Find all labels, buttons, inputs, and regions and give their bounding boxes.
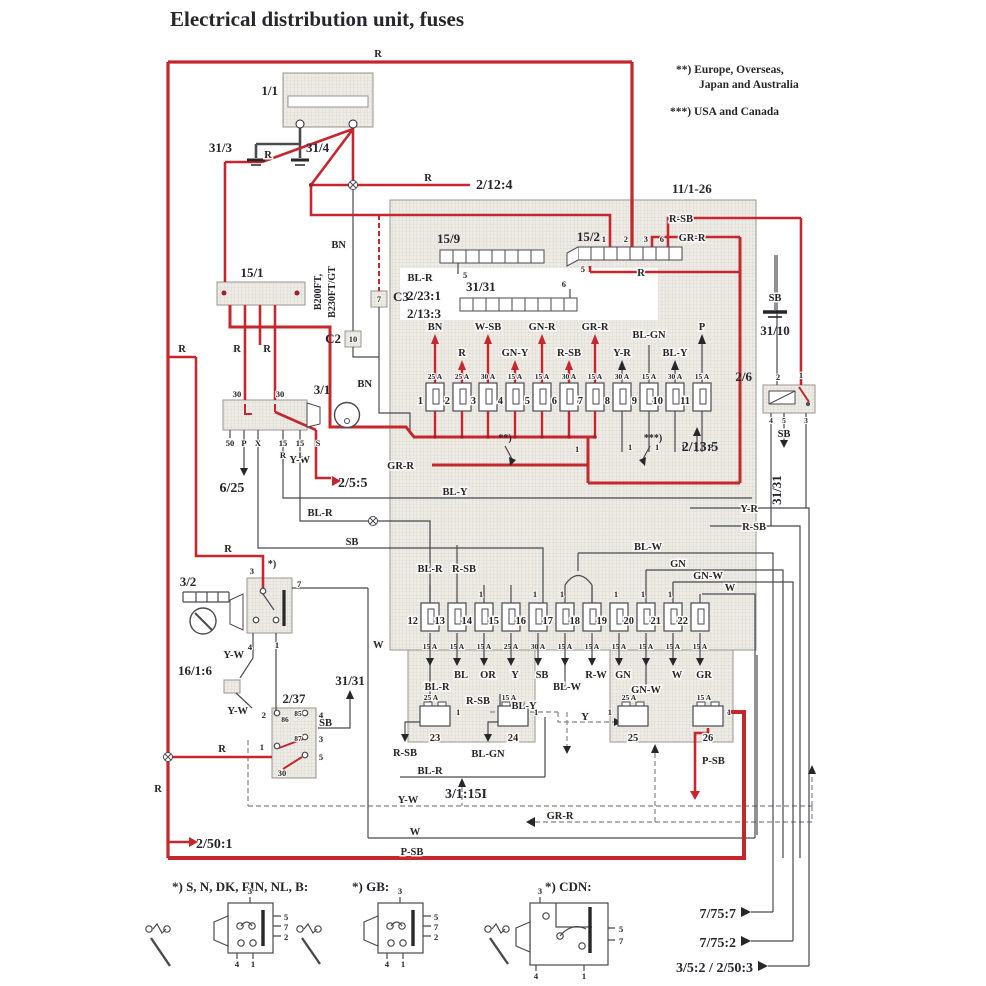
label-wires-r: R: [424, 173, 432, 184]
label-refs-t7752: 7/75:2: [699, 936, 736, 951]
label-wires-yr: Y-R: [740, 504, 758, 515]
label-refs-g3131: 31/31: [769, 475, 784, 505]
label-wires-sb: SB: [778, 429, 791, 440]
label-fuses-row2-0-n: 12: [408, 616, 419, 627]
fuse-element: [455, 609, 461, 624]
fuse-element: [509, 609, 515, 624]
label-fuses-row2-8-n: 20: [624, 616, 635, 627]
label-refs-s32: 3/2: [180, 574, 197, 589]
label-pins-1: 1: [641, 589, 645, 599]
label-fuses-row2-7-w: GN: [615, 670, 631, 681]
label-refs-star3: ***): [644, 433, 662, 444]
strip-15-2-cell: [604, 247, 617, 260]
label-pins-3: 3: [538, 886, 542, 896]
label-pins-87: 87: [294, 734, 302, 743]
label-fuses-row1-4-n: 5: [525, 396, 530, 407]
label-pins-3: 3: [644, 234, 648, 244]
fuse-element: [563, 609, 569, 624]
label-refs-c1616: 16/1:6: [178, 663, 212, 678]
label-fuses-row1-2-w: W-SB: [475, 322, 501, 333]
label-fuses-row2-1-w: BL: [454, 670, 468, 681]
label-pins-P: P: [241, 438, 246, 448]
label-fuses-row1-0-a: 25 A: [428, 372, 443, 381]
label-fuses-row1-1-w: R: [458, 348, 466, 359]
strip-15-2-cell: [617, 247, 630, 260]
strip-31-31-cell: [564, 298, 577, 311]
label-wires-psb: P-SB: [401, 847, 424, 858]
fuse-body: [618, 706, 648, 726]
fuse-element: [620, 389, 626, 404]
label-pins-5: 5: [434, 912, 438, 922]
fuse-element: [644, 609, 650, 624]
label-fuses-row1-8-n: 9: [632, 396, 637, 407]
label-refs-g314: 31/4: [306, 140, 330, 155]
label-fuses-row1-6-a: 15 A: [588, 372, 603, 381]
label-refs-c3: C3: [393, 289, 409, 304]
fuse-element: [590, 609, 596, 624]
label-fuses-row2-2-w: OR: [480, 670, 496, 681]
label-pins-85: 85: [294, 709, 302, 718]
label-refs-eng2: B230FT/GT: [327, 266, 338, 318]
battery-terminal-neg: [296, 120, 304, 128]
label-fuses-row1-10-a: 15 A: [695, 372, 710, 381]
label-refs-t352: 3/5:2 / 2/50:3: [676, 961, 753, 976]
label-pins-1: 1: [602, 234, 606, 244]
label-pins-1: 1: [479, 589, 483, 599]
label-wires-r: R: [263, 344, 271, 355]
label-pins-X: X: [255, 438, 262, 448]
label-pins-1: 1: [533, 589, 537, 599]
label-wires-rsb: R-SB: [742, 522, 766, 533]
label-wires-grr: GR-R: [387, 461, 414, 472]
label-wires-r: R: [224, 544, 232, 555]
label-wires-bn: BN: [357, 379, 372, 390]
label-fuses-row1-6-n: 7: [578, 396, 583, 407]
label-fuses-row1-1-n: 2: [445, 396, 450, 407]
junction-dot: [309, 183, 313, 187]
label-fuses-row1-2-a: 30 A: [481, 372, 496, 381]
label-refs-r26: 2/6: [735, 369, 752, 384]
label-fuses-row2-4-w: SB: [536, 670, 549, 681]
fuse-element: [671, 609, 677, 624]
label-refs-star2: **): [498, 433, 511, 444]
fuse-element: [540, 389, 546, 404]
junction-dot: [433, 435, 437, 439]
label-fuses-row1-5-a: 30 A: [562, 372, 577, 381]
label-fuses-row1-3-a: 15 A: [508, 372, 523, 381]
label-pins-2: 2: [262, 710, 266, 720]
label-pins-3: 3: [250, 566, 254, 576]
label-refs-s151: 15/1: [240, 265, 263, 280]
label-pins-1: 1: [275, 640, 279, 650]
label-wires-blw: BL-W: [634, 542, 663, 553]
label-fuses-row1-8-w: BL-GN: [632, 330, 666, 341]
label-refs-t31151: 3/1:15I: [445, 787, 487, 802]
label-pins-6: 6: [562, 279, 566, 289]
label-wires-w: W: [410, 827, 421, 838]
strip-15-2-cell: [656, 247, 669, 260]
label-wires-gnw: GN-W: [631, 685, 661, 696]
label-fuses-row1-9-n: 10: [653, 396, 664, 407]
fuse-body: [693, 706, 723, 726]
label-wires-yw: Y-W: [227, 706, 248, 717]
label-pins-1: 1: [608, 707, 612, 717]
label-pins-2: 2: [776, 372, 780, 382]
junction-dot: [460, 435, 464, 439]
label-wires-blw: BL-W: [553, 682, 582, 693]
page: BN25 A1R25 A2W-SB30 A3GN-Y15 A4GN-R15 A5…: [0, 0, 986, 986]
label-wires-r: R: [218, 744, 226, 755]
connector-16-1-6: [224, 680, 240, 693]
label-pins-3: 3: [248, 886, 252, 896]
label-pins-30: 30: [278, 768, 287, 778]
label-pins-2: 2: [434, 932, 438, 942]
label-refs-c2231: 2/23:1: [407, 288, 441, 303]
relay-contact-dot: [806, 402, 810, 406]
label-pins-1: 1: [614, 589, 618, 599]
label-fuses-row2-1-n: 13: [435, 616, 446, 627]
label-fuses-row2-2-n: 14: [462, 616, 473, 627]
label-pins-5: 5: [782, 416, 786, 425]
label-wires-psb: P-SB: [702, 756, 725, 767]
label-wires-bly: BL-Y: [442, 487, 468, 498]
label-pins-30: 30: [233, 389, 242, 399]
label-wires-rsb: R-SB: [466, 696, 490, 707]
label-refs-i31: 3/1: [314, 382, 331, 397]
label-wires-w: W: [725, 583, 736, 594]
label-fuses-row3-2-n: 25: [628, 733, 639, 744]
label-fuses-row1-10-n: 11: [680, 396, 690, 407]
strip-15-2-cell: [591, 247, 604, 260]
label-fuses-row1-7-n: 8: [605, 396, 610, 407]
label-pins-30: 30: [276, 389, 285, 399]
label-pins-1: 1: [628, 442, 632, 452]
label-fuses-row2-3-n: 15: [489, 616, 500, 627]
label-wires-blr: BL-R: [424, 682, 450, 693]
fuse-element: [482, 609, 488, 624]
label-fuses-row1-9-a: 30 A: [668, 372, 683, 381]
junction-dot: [567, 435, 571, 439]
label-refs-t2501: 2/50:1: [196, 837, 233, 852]
label-fuses-row1-10-w: P: [699, 322, 706, 333]
strip-15-9-cell: [453, 250, 466, 263]
label-wires-grr: GR-R: [679, 233, 706, 244]
label-pins-2: 2: [624, 234, 628, 244]
label-refs-t2135: 2/13:5: [682, 440, 719, 455]
label-pins-1: 1: [456, 707, 460, 717]
label-wires-gn: GN: [670, 559, 686, 570]
junction-dot: [593, 435, 597, 439]
strip-15-2-cell: [669, 247, 682, 260]
junction-dot: [513, 435, 517, 439]
battery-window: [288, 96, 368, 107]
label-refs-vb: *) GB:: [352, 879, 389, 894]
strip-15-2-cell: [643, 247, 656, 260]
label-fuses-row1-5-w: R-SB: [557, 348, 581, 359]
label-wires-blr: BL-R: [307, 508, 333, 519]
label-pins-1: 1: [727, 707, 731, 717]
label-wires-rsb: R-SB: [393, 748, 417, 759]
switch-connector: [230, 594, 243, 630]
label-refs-unit: 11/1-26: [672, 181, 712, 196]
strip-15-9-cell: [531, 250, 544, 263]
label-pins-86: 86: [281, 715, 289, 724]
label-pins-5: 5: [619, 924, 623, 934]
label-fuses-row1-6-w: GR-R: [582, 322, 609, 333]
fuse-element: [486, 389, 492, 404]
fuse-body: [420, 706, 450, 726]
strip-15-2-cell: [578, 247, 591, 260]
fuse-element: [567, 389, 573, 404]
label-legend-l3: ***) USA and Canada: [670, 106, 779, 118]
label-fuses-row2-3-w: Y: [511, 670, 519, 681]
label-pins-1: 1: [401, 959, 405, 969]
junction-dot: [486, 435, 490, 439]
label-pins-1: 1: [668, 589, 672, 599]
strip-15-2-cell: [630, 247, 643, 260]
label-wires-blr: BL-R: [417, 564, 443, 575]
label-fuses-row1-8-a: 15 A: [642, 372, 657, 381]
label-fuses-row1-0-n: 1: [418, 396, 423, 407]
label-fuses-row1-3-w: GN-Y: [502, 348, 529, 359]
wiring-diagram: BN25 A1R25 A2W-SB30 A3GN-Y15 A4GN-R15 A5…: [0, 0, 986, 986]
label-legend-l1: **) Europe, Overseas,: [676, 64, 784, 76]
label-pins-5: 5: [319, 752, 323, 762]
label-refs-g3131: 31/31: [335, 673, 365, 688]
label-pins-1: 1: [582, 971, 586, 981]
label-legend-l2: Japan and Australia: [699, 79, 799, 91]
label-fuses-row1-4-w: GN-R: [529, 322, 556, 333]
label-refs-eng1: B200FT,: [313, 273, 324, 310]
label-wires-sb: SB: [769, 293, 782, 304]
label-pins-1: 1: [251, 959, 255, 969]
label-wires-r: R: [374, 49, 382, 60]
label-refs-c2133: 2/13:3: [407, 306, 441, 321]
bus-15-1: [217, 282, 305, 305]
variant-c-box: [530, 903, 608, 965]
strip-31-31-cell: [512, 298, 525, 311]
label-pins-5: 5: [581, 264, 585, 274]
label-pins-6: 6: [660, 234, 664, 244]
label-wires-blr: BL-R: [407, 273, 433, 284]
label-wires-y: Y: [581, 712, 589, 723]
label-refs-vc: *) CDN:: [545, 879, 592, 894]
fuse-element: [698, 609, 704, 624]
label-refs-c2: C2: [325, 331, 341, 346]
fuse-element: [513, 389, 519, 404]
label-refs-g3110: 31/10: [760, 323, 790, 338]
fuse-element: [536, 609, 542, 624]
label-fuses-row1-4-a: 15 A: [535, 372, 550, 381]
label-fuses-row2-9-w: W: [672, 670, 683, 681]
label-title: Electrical distribution unit, fuses: [170, 7, 464, 31]
label-fuses-row1-7-w: Y-R: [613, 348, 631, 359]
strip-31-31-cell: [525, 298, 538, 311]
label-wires-yw: Y-W: [398, 795, 419, 806]
label-wires-gnw: GN-W: [693, 571, 723, 582]
label-pins-R: R: [280, 450, 287, 460]
label-fuses-row2-7-n: 19: [597, 616, 608, 627]
label-wires-blgn: BL-GN: [471, 749, 505, 760]
label-fuses-row2-6-n: 18: [570, 616, 581, 627]
junction-dot: [540, 435, 544, 439]
strip-31-31-cell: [473, 298, 486, 311]
label-wires-r: R: [637, 268, 645, 279]
label-fuses-row2-6-w: R-W: [585, 670, 607, 681]
strip-31-31-cell: [551, 298, 564, 311]
label-wires-blr: BL-R: [417, 766, 443, 777]
label-refs-s3131: 31/31: [466, 279, 496, 294]
fuse-element: [428, 609, 434, 624]
fuse-element: [700, 389, 706, 404]
label-wires-r: R: [233, 344, 241, 355]
strip-31-31-cell: [460, 298, 473, 311]
label-wires-w: W: [373, 640, 384, 651]
label-wires-sb: SB: [346, 537, 359, 548]
strip-15-9-cell: [479, 250, 492, 263]
label-pins-2: 2: [284, 932, 288, 942]
label-fuses-row3-0-n: 23: [430, 733, 441, 744]
label-fuses-row1-1-a: 25 A: [455, 372, 470, 381]
label-fuses-row1-7-a: 30 A: [615, 372, 630, 381]
label-fuses-row2-9-n: 21: [651, 616, 662, 627]
label-pins-1: 1: [560, 589, 564, 599]
label-fuses-row2-5-n: 17: [543, 616, 554, 627]
fuse-element: [673, 389, 679, 404]
fuse-element: [460, 389, 466, 404]
label-refs-t255: 2/5:5: [338, 476, 368, 491]
label-pins-15: 15: [279, 438, 288, 448]
label-pins-1: 1: [260, 742, 264, 752]
fuse-element: [433, 389, 439, 404]
label-wires-yw: Y-W: [223, 650, 244, 661]
strip-15-9-cell: [505, 250, 518, 263]
label-fuses-row1-5-n: 6: [552, 396, 557, 407]
label-refs-battery: 1/1: [261, 83, 278, 98]
label-refs-t7757: 7/75:7: [699, 907, 736, 922]
label-pins-3: 3: [319, 734, 323, 744]
label-refs-va: *) S, N, DK, FIN, NL, B:: [172, 879, 308, 894]
fuse-element: [617, 609, 623, 624]
label-pins-3: 3: [398, 886, 402, 896]
strip-31-31-cell: [486, 298, 499, 311]
label-wires-rsb: R-SB: [452, 564, 476, 575]
strip-31-31-cell: [538, 298, 551, 311]
label-fuses-row3-1-n: 24: [508, 733, 519, 744]
label-pins-1: 1: [575, 444, 579, 454]
label-pins-S: S: [316, 438, 321, 448]
fuse-element: [593, 389, 599, 404]
ignition-switch-body: [223, 400, 307, 430]
strip-15-9-cell: [440, 250, 453, 263]
label-pins-10: 10: [349, 334, 358, 344]
bus-terminal: [295, 291, 300, 296]
label-wires-grr: GR-R: [547, 811, 574, 822]
strip-15-9-cell: [466, 250, 479, 263]
label-pins-5: 5: [284, 912, 288, 922]
label-fuses-row3-3-a: 15 A: [697, 693, 712, 702]
label-pins-50: 50: [226, 438, 235, 448]
battery-terminal-pos: [349, 120, 357, 128]
label-refs-r237: 2/37: [282, 691, 306, 706]
label-pins-15: 15: [296, 438, 305, 448]
strip-15-9-cell: [518, 250, 531, 263]
label-pins-4: 4: [769, 416, 773, 425]
label-wires-rsb: R-SB: [669, 214, 693, 225]
label-pins-5: 5: [463, 270, 467, 280]
label-fuses-row1-3-n: 4: [498, 396, 504, 407]
label-wires-r: R: [178, 344, 186, 355]
bus-terminal: [222, 291, 227, 296]
label-refs-t2124: 2/12:4: [476, 178, 513, 193]
label-pins-3: 3: [804, 416, 808, 425]
strip-15-9-cell: [492, 250, 505, 263]
label-fuses-row3-3-n: 26: [703, 733, 714, 744]
label-fuses-row3-0-a: 25 A: [424, 693, 439, 702]
label-wires-bn: BN: [331, 240, 346, 251]
label-fuses-row1-2-n: 3: [471, 396, 476, 407]
label-refs-s152: 15/2: [577, 229, 600, 244]
label-refs-star1: *): [268, 559, 276, 570]
label-pins-1: 1: [534, 707, 538, 717]
label-fuses-row2-10-n: 22: [678, 616, 689, 627]
ignition-connector: [307, 403, 320, 427]
label-pins-1: 1: [799, 370, 803, 380]
label-fuses-row2-4-n: 16: [516, 616, 527, 627]
label-fuses-row2-10-w: GR: [696, 670, 712, 681]
label-wires-r: R: [264, 150, 272, 161]
label-refs-g313: 31/3: [209, 140, 233, 155]
label-wires-r: R: [154, 784, 162, 795]
label-refs-t625: 6/25: [220, 481, 245, 496]
strip-31-31-cell: [499, 298, 512, 311]
label-refs-s159: 15/9: [437, 231, 461, 246]
label-fuses-row1-9-w: BL-Y: [662, 348, 688, 359]
label-fuses-row1-0-w: BN: [428, 322, 443, 333]
